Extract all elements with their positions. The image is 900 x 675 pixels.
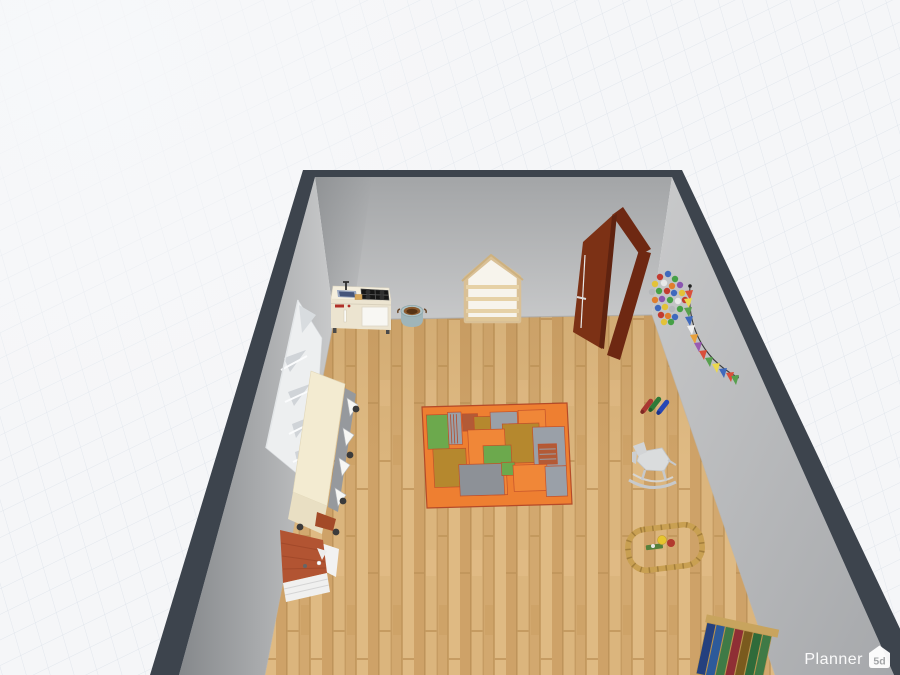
flower <box>668 319 674 325</box>
flower <box>657 274 663 280</box>
flower <box>672 314 678 320</box>
burner <box>380 290 385 295</box>
planner-3d-viewport[interactable]: Planner 5d <box>0 0 900 675</box>
flower <box>649 289 655 295</box>
flower <box>655 305 661 311</box>
flower <box>677 282 683 288</box>
storage-wheel <box>297 524 304 531</box>
burner <box>366 290 371 295</box>
kitchen-leg <box>333 328 337 333</box>
house-shelf-board <box>466 297 519 301</box>
flower <box>677 306 683 312</box>
flower <box>669 283 675 289</box>
burner <box>380 295 385 300</box>
garland-pin <box>688 284 692 288</box>
flower <box>665 313 671 319</box>
flower <box>672 276 678 282</box>
play-kitchen[interactable] <box>331 282 391 334</box>
flower <box>675 298 681 304</box>
flower <box>659 296 665 302</box>
flower <box>652 297 658 303</box>
flower <box>667 297 673 303</box>
kitchen-board <box>355 295 362 300</box>
flower <box>679 290 685 296</box>
burner <box>366 295 371 300</box>
rug-patch <box>545 466 568 497</box>
flower <box>652 281 658 287</box>
house-shelf-base <box>466 317 519 321</box>
rug-patch <box>459 463 505 496</box>
kitchen-handle <box>344 310 346 322</box>
watermark-logo-text: 5d <box>873 656 885 668</box>
flower <box>665 271 671 277</box>
flower <box>669 306 675 312</box>
kitchen-oven-door <box>362 307 388 326</box>
house-shelf-board <box>466 285 519 289</box>
storage-wheel <box>353 406 360 413</box>
dollhouse-decal <box>317 561 321 565</box>
rug-patch <box>447 412 462 445</box>
storage-wheel <box>333 529 340 536</box>
rug-patch <box>426 414 449 449</box>
dollhouse-window <box>303 564 307 568</box>
flower <box>661 319 667 325</box>
train-yellow <box>658 536 667 545</box>
patchwork-rug[interactable] <box>422 403 572 508</box>
flower <box>664 288 670 294</box>
flower <box>658 312 664 318</box>
storage-wheel <box>340 498 347 505</box>
flower <box>662 304 668 310</box>
house-shelf-board <box>466 309 519 313</box>
kitchen-red-knobs <box>335 305 344 308</box>
flower <box>656 288 662 294</box>
flower <box>661 280 667 286</box>
flower <box>671 290 677 296</box>
basket-inner-dark <box>406 309 417 314</box>
watermark-brand: Planner <box>804 651 863 668</box>
storage-wheel <box>347 452 354 459</box>
train-red <box>667 539 675 547</box>
train-white <box>651 544 655 548</box>
kitchen-red-dot <box>348 305 351 308</box>
rug-patch <box>513 464 548 491</box>
kitchen-leg <box>386 330 390 334</box>
kitchen-sink <box>339 292 355 298</box>
